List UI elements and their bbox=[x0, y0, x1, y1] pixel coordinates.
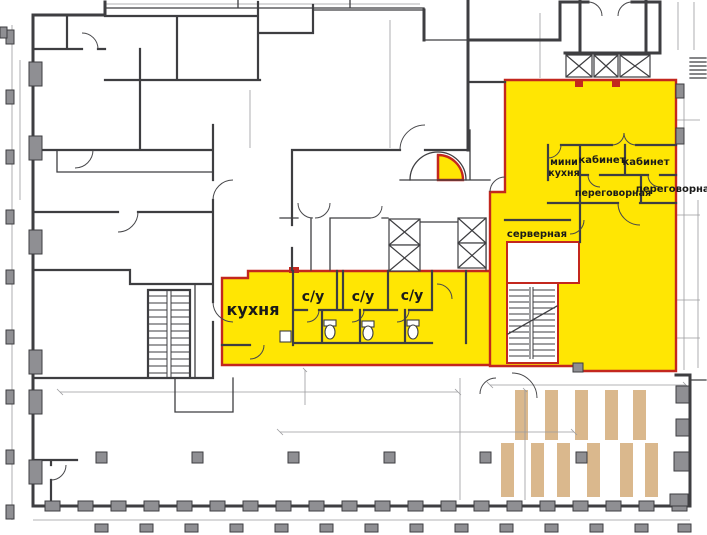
floor-plan-drawing: кухня с/у с/у с/у мини кухня кабинет каб… bbox=[0, 0, 707, 535]
label-meeting-2: переговорная bbox=[636, 184, 707, 195]
label-wc-3: с/у bbox=[401, 288, 424, 304]
lease-border-tab bbox=[612, 81, 620, 87]
floor-plan-page: кухня с/у с/у с/у мини кухня кабинет каб… bbox=[0, 0, 707, 535]
label-wc-1: с/у bbox=[302, 289, 325, 305]
label-office-2: кабинет bbox=[622, 156, 669, 168]
label-mini-kitchen-2: кухня bbox=[548, 168, 579, 179]
label-mini-kitchen-1: мини bbox=[550, 157, 578, 168]
lease-border-tab bbox=[575, 81, 583, 87]
void-server-shaft bbox=[507, 242, 579, 283]
label-server-room: серверная bbox=[507, 229, 567, 240]
label-kitchen: кухня bbox=[227, 300, 280, 319]
label-office-1: кабинет bbox=[578, 154, 625, 166]
label-wc-2: с/у bbox=[352, 289, 375, 305]
